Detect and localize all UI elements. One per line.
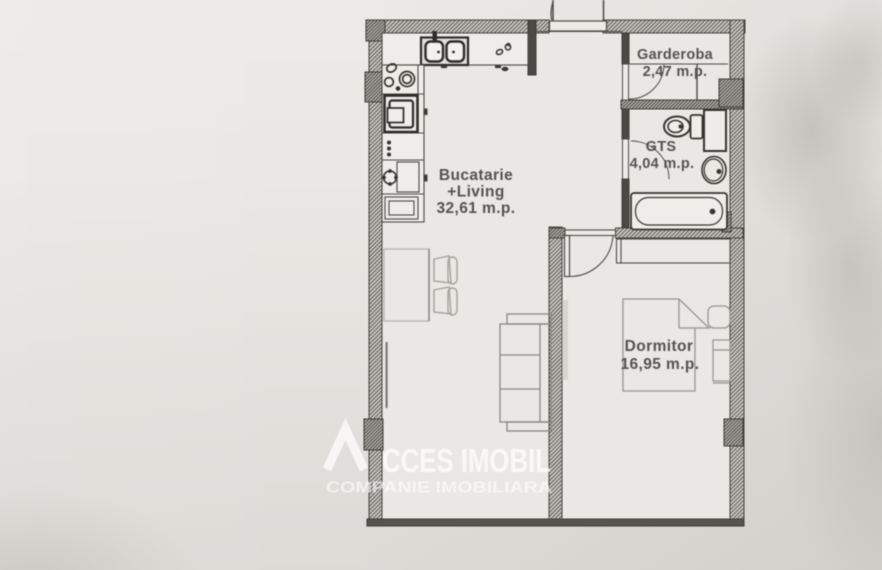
svg-text:CCES IMOBIL: CCES IMOBIL	[382, 443, 551, 480]
svg-text:Bucatarie: Bucatarie	[439, 167, 513, 184]
svg-text:2,47 m.p.: 2,47 m.p.	[643, 64, 708, 80]
svg-text:32,61 m.p.: 32,61 m.p.	[437, 200, 516, 217]
svg-text:Garderoba: Garderoba	[637, 47, 714, 63]
svg-text:Dormitor: Dormitor	[625, 338, 694, 355]
svg-text:16,95 m.p.: 16,95 m.p.	[621, 356, 700, 373]
svg-text:4,04 m.p.: 4,04 m.p.	[630, 156, 695, 172]
svg-text:+Living: +Living	[447, 184, 505, 201]
svg-text:COMPANIE IMOBILIARA: COMPANIE IMOBILIARA	[326, 480, 553, 497]
svg-text:GTS: GTS	[646, 139, 677, 155]
